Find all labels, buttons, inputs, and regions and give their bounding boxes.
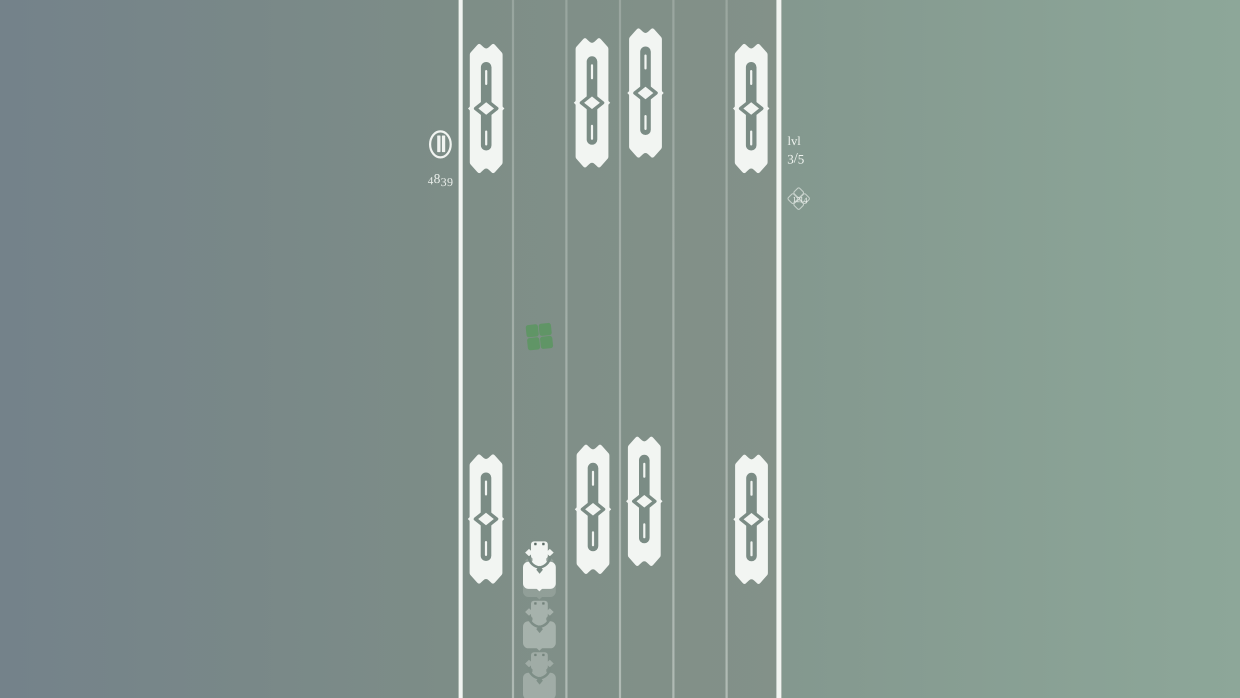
svg-text:lvl: lvl <box>787 134 801 148</box>
svg-text:1214: 1214 <box>792 195 808 205</box>
svg-text:3/5: 3/5 <box>787 150 804 166</box>
